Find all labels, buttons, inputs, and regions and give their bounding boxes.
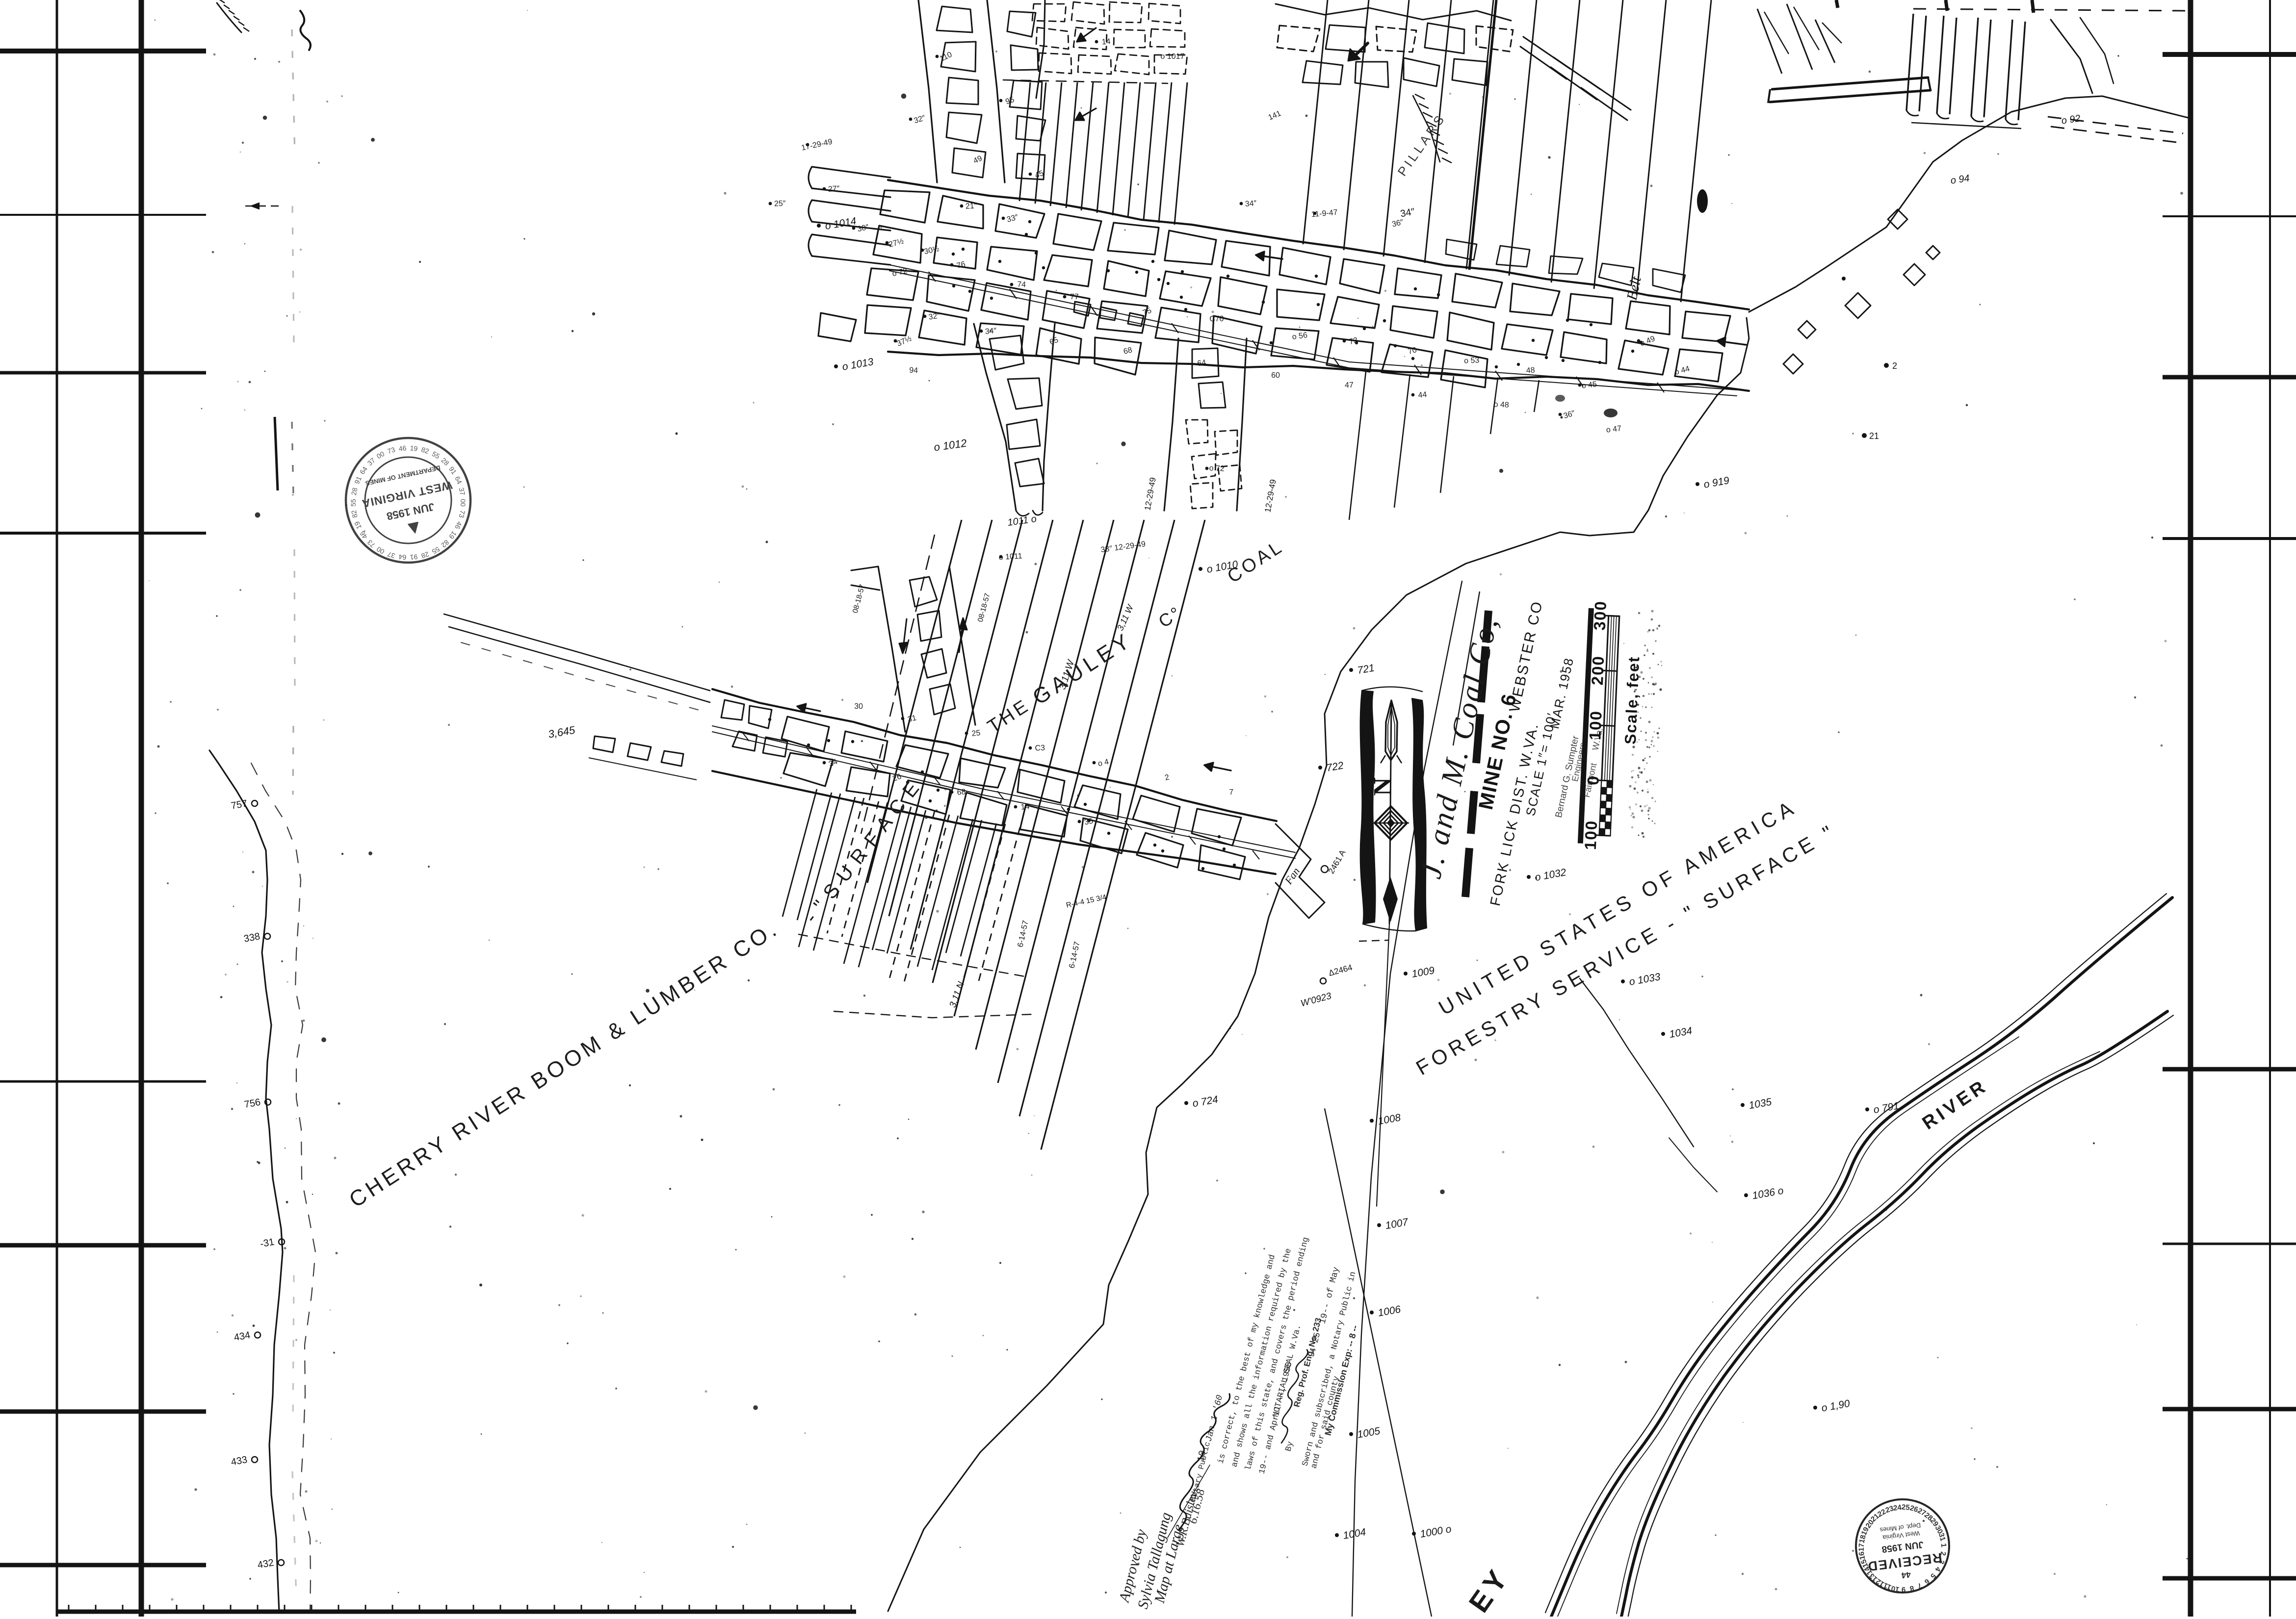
svg-text:14: 14 (1101, 37, 1111, 46)
svg-text:64: 64 (398, 553, 407, 562)
svg-text:14: 14 (1020, 802, 1030, 812)
svg-text:19: 19 (410, 444, 418, 453)
svg-text:60: 60 (1271, 371, 1280, 380)
svg-text:C3: C3 (1035, 744, 1045, 753)
svg-text:32″: 32″ (928, 312, 941, 322)
svg-text:46: 46 (398, 444, 407, 453)
svg-text:o 47: o 47 (1606, 424, 1622, 434)
svg-text:9: 9 (1902, 1585, 1906, 1593)
svg-text:44: 44 (1901, 1569, 1911, 1580)
svg-text:74: 74 (1017, 281, 1026, 289)
svg-text:25″: 25″ (774, 200, 786, 208)
svg-text:21″: 21″ (965, 202, 977, 211)
svg-text:48: 48 (1526, 366, 1535, 375)
svg-text:o 48: o 48 (1493, 400, 1509, 410)
svg-text:o 72: o 72 (1209, 464, 1225, 473)
svg-text:44: 44 (1418, 390, 1428, 400)
svg-text:68: 68 (957, 788, 966, 797)
svg-text:1: 1 (1939, 1543, 1948, 1548)
svg-text:100: 100 (1581, 820, 1601, 850)
svg-text:0: 0 (1584, 774, 1602, 785)
svg-text:94: 94 (909, 366, 918, 375)
svg-text:34″: 34″ (1245, 199, 1257, 208)
svg-text:100: 100 (1586, 710, 1605, 741)
svg-text:N: N (1369, 777, 1397, 796)
svg-text:300: 300 (1591, 600, 1610, 631)
svg-text:30: 30 (854, 702, 863, 711)
svg-text:o 1017: o 1017 (1161, 52, 1185, 61)
svg-text:7: 7 (1229, 788, 1233, 797)
svg-text:25: 25 (971, 729, 981, 738)
svg-text:C70: C70 (1209, 315, 1224, 323)
svg-text:91: 91 (410, 553, 418, 562)
svg-text:17: 17 (1857, 1543, 1866, 1551)
svg-text:200: 200 (1588, 655, 1608, 686)
svg-text:27″: 27″ (828, 184, 840, 193)
svg-text:o 53: o 53 (1464, 356, 1480, 365)
svg-text:55: 55 (349, 499, 357, 507)
svg-text:64: 64 (1197, 359, 1206, 368)
svg-text:77: 77 (1070, 293, 1079, 301)
svg-text:21: 21 (1869, 431, 1879, 441)
svg-text:16: 16 (1857, 1551, 1867, 1560)
svg-text:Scale, feet: Scale, feet (1621, 656, 1643, 745)
svg-text:00: 00 (459, 499, 467, 507)
svg-text:2: 2 (1892, 361, 1897, 371)
svg-text:47: 47 (1345, 381, 1354, 389)
